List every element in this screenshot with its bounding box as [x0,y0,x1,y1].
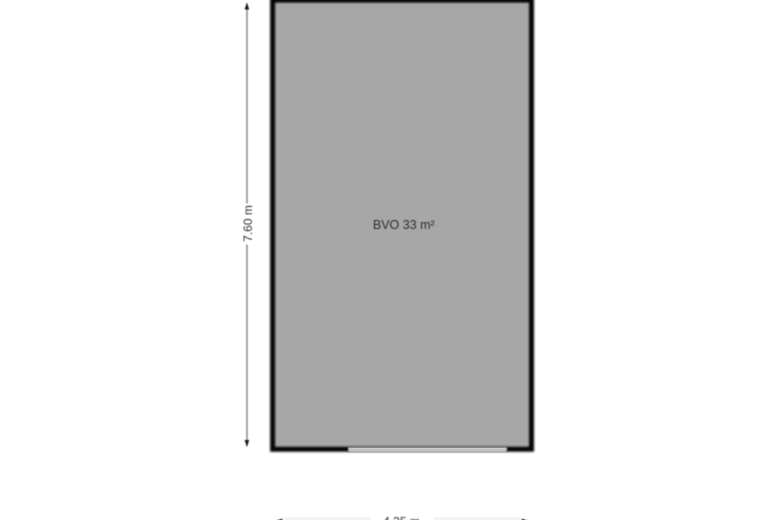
svg-text:7.60 m: 7.60 m [241,205,255,242]
svg-text:4.35 m: 4.35 m [383,514,420,520]
svg-text:BVO 33 m²: BVO 33 m² [373,218,435,232]
